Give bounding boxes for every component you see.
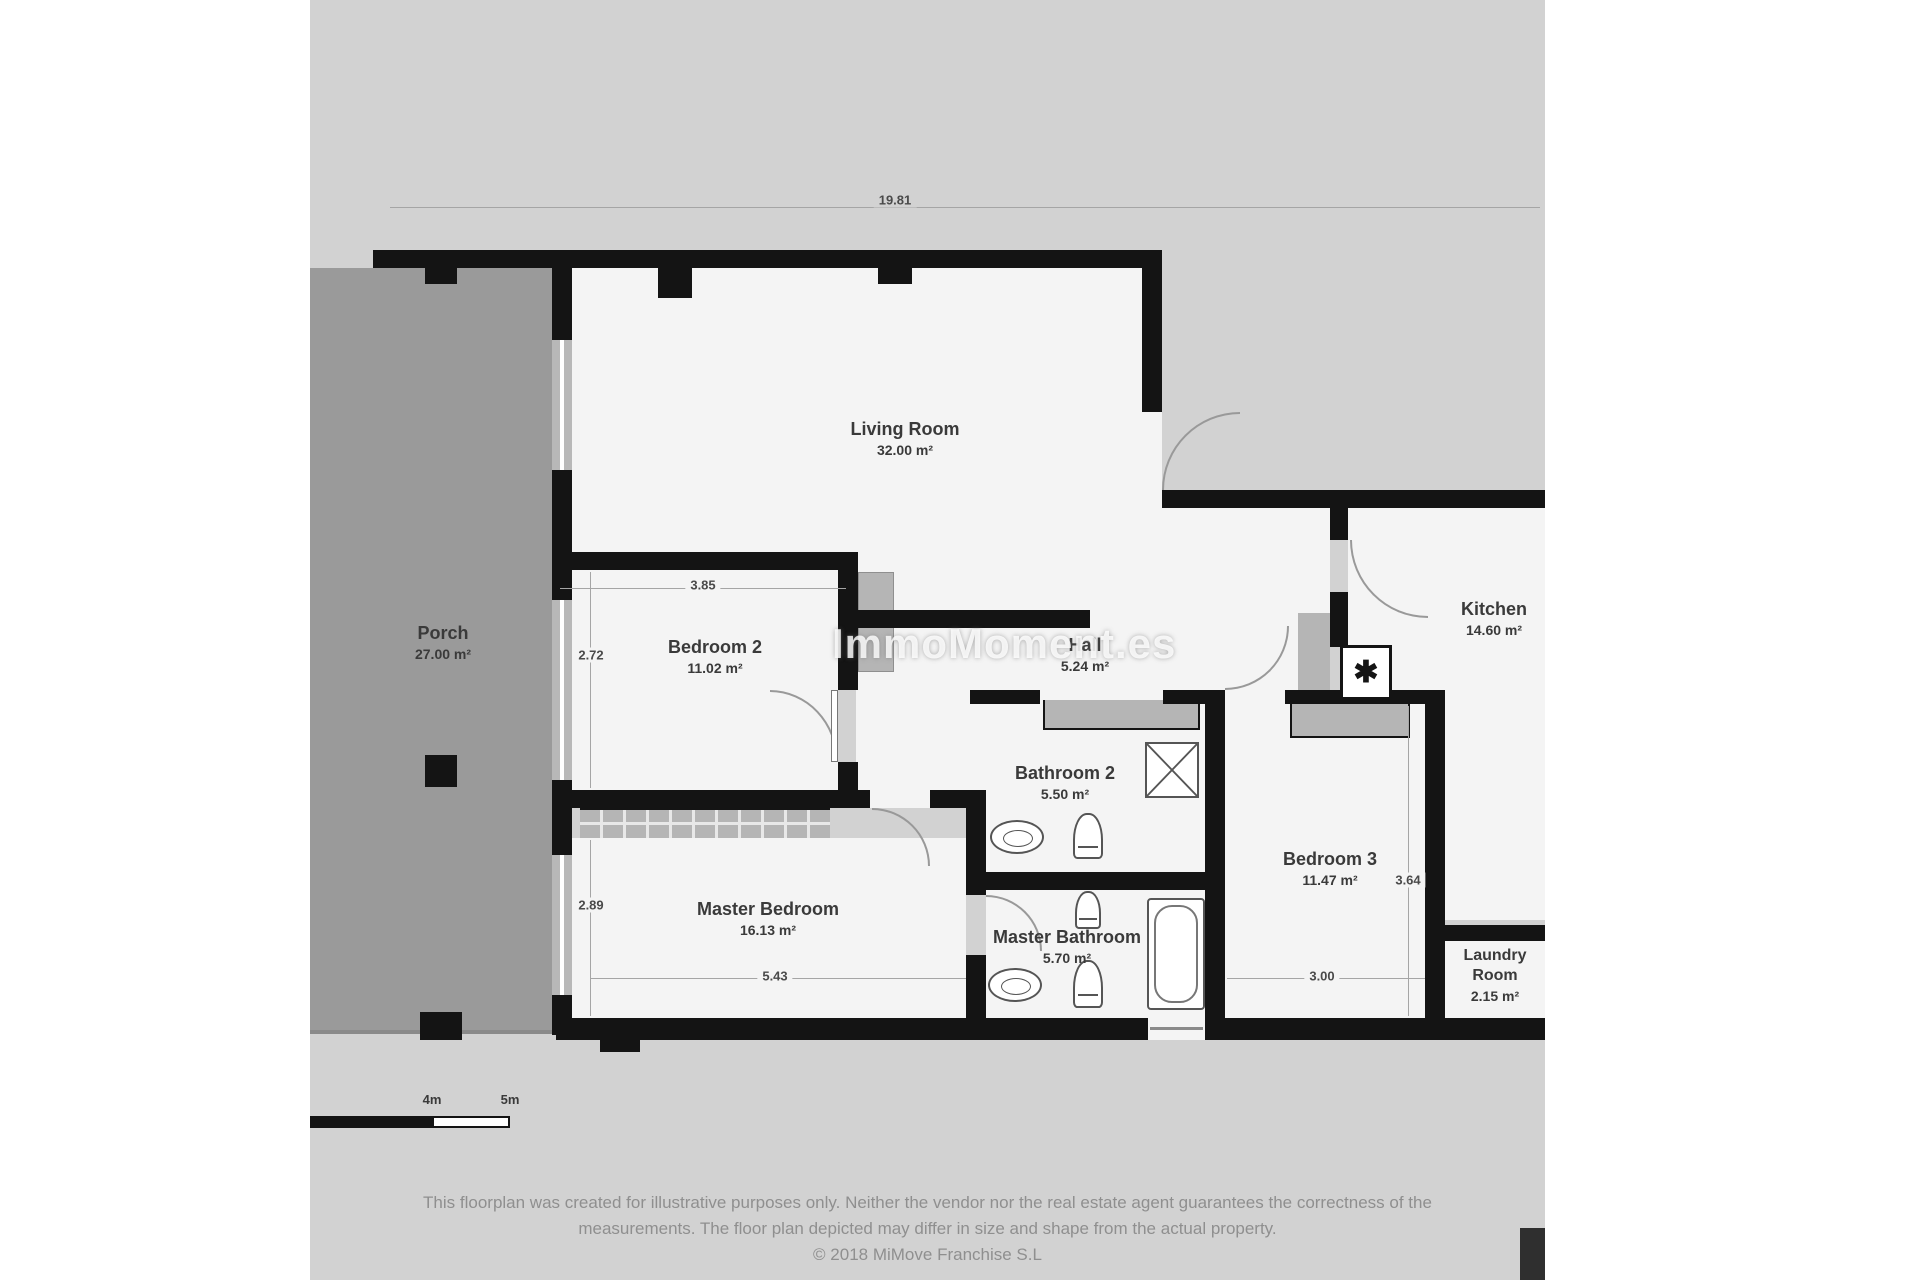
bathroom2-sink xyxy=(990,820,1044,854)
room-name-bedroom3: Bedroom 3 xyxy=(1283,848,1377,870)
wall-bath-divider xyxy=(986,872,1205,890)
scale-bar-solid xyxy=(310,1116,432,1128)
shower-tray xyxy=(1145,742,1199,798)
door-arc-master-bedroom xyxy=(872,808,930,866)
room-name-laundry: Laundry Room xyxy=(1449,946,1541,986)
wall-kitchen-left-lower xyxy=(1330,592,1348,647)
room-name-bedroom2: Bedroom 2 xyxy=(668,636,762,658)
dim-label-bedroom2-width: 3.85 xyxy=(685,578,720,593)
dim-label-bedroom3-depth: 3.64 xyxy=(1390,873,1425,888)
room-area-bedroom2: 11.02 m² xyxy=(668,658,762,678)
master-bathroom-sink xyxy=(988,968,1042,1002)
scale-label-4m: 4m xyxy=(423,1092,442,1107)
wall-laundry-top xyxy=(1445,925,1545,941)
porch-column xyxy=(425,755,457,787)
room-area-bathroom2: 5.50 m² xyxy=(1015,784,1115,804)
wall-master-top-a xyxy=(556,790,870,808)
wall-bathroom2-top-a xyxy=(986,690,1040,704)
wall-top xyxy=(373,250,1162,268)
wall-bedroom3-right xyxy=(1425,690,1445,1035)
room-area-master-bathroom: 5.70 m² xyxy=(993,948,1141,968)
door-arc-living-corridor xyxy=(1162,412,1240,490)
room-area-master-bedroom: 16.13 m² xyxy=(697,920,839,940)
bathroom2-toilet xyxy=(1073,813,1103,859)
wall-living-right xyxy=(1142,250,1162,412)
room-label-kitchen: Kitchen 14.60 m² xyxy=(1461,598,1527,640)
disclaimer-line2: measurements. The floor plan depicted ma… xyxy=(310,1216,1545,1242)
scale-label-5m: 5m xyxy=(501,1092,520,1107)
room-label-bedroom3: Bedroom 3 11.47 m² xyxy=(1283,848,1377,890)
wall-bedroom2-top xyxy=(556,552,858,570)
wall-bathroom2-top-b xyxy=(1163,690,1205,704)
watermark: ImmoMoment.es xyxy=(832,620,1176,668)
wall-column-2 xyxy=(658,268,692,298)
room-label-bedroom2: Bedroom 2 11.02 m² xyxy=(668,636,762,678)
dim-label-master-depth: 2.89 xyxy=(573,898,608,913)
room-label-living: Living Room 32.00 m² xyxy=(851,418,960,460)
wall-kitchen-top xyxy=(1162,490,1545,508)
dim-label-top: 19.81 xyxy=(874,193,917,208)
wall-bottom-left xyxy=(556,1018,1148,1040)
disclaimer-line1: This floorplan was created for illustrat… xyxy=(310,1190,1545,1216)
room-name-kitchen: Kitchen xyxy=(1461,598,1527,620)
room-name-master-bedroom: Master Bedroom xyxy=(697,898,839,920)
bedroom3-closet xyxy=(1290,704,1410,738)
floorplan-page: ✱ 19.81 3.85 2.72 2.89 5.43 3.64 xyxy=(0,0,1920,1280)
room-area-living: 32.00 m² xyxy=(851,440,960,460)
scale-bar-open xyxy=(432,1116,510,1128)
window-bedroom2 xyxy=(552,600,572,780)
boiler-unit: ✱ xyxy=(1340,645,1392,700)
wall-kitchen-left-upper xyxy=(1330,508,1348,540)
dim-line-master-depth xyxy=(590,840,591,1016)
room-area-bedroom3: 11.47 m² xyxy=(1283,870,1377,890)
copyright: © 2018 MiMove Franchise S.L xyxy=(310,1242,1545,1268)
footer: This floorplan was created for illustrat… xyxy=(310,1190,1545,1268)
living-corridor-opening xyxy=(1142,412,1162,490)
room-area-porch: 27.00 m² xyxy=(415,644,471,664)
room-label-master-bathroom: Master Bathroom 5.70 m² xyxy=(993,926,1141,968)
boiler-symbol: ✱ xyxy=(1353,655,1378,690)
wall-column-1 xyxy=(425,268,457,284)
dim-line-top xyxy=(390,207,1540,208)
room-name-bathroom2: Bathroom 2 xyxy=(1015,762,1115,784)
room-name-porch: Porch xyxy=(415,622,471,644)
cropped-logo-block xyxy=(1520,1228,1545,1280)
room-label-porch: Porch 27.00 m² xyxy=(415,622,471,664)
wall-porch-a xyxy=(552,250,572,340)
dim-line-bedroom2-depth xyxy=(590,572,591,788)
window-master-bedroom xyxy=(552,855,572,995)
room-name-master-bathroom: Master Bathroom xyxy=(993,926,1141,948)
room-area-laundry: 2.15 m² xyxy=(1449,986,1541,1006)
dim-label-master-width: 5.43 xyxy=(757,969,792,984)
wall-porch-b xyxy=(552,470,572,600)
kitchen-cabinet xyxy=(1298,613,1330,690)
master-bathroom-bidet xyxy=(1075,891,1101,929)
wardrobe-closet xyxy=(580,808,830,838)
hall-closet xyxy=(1043,700,1200,730)
terrace-door-threshold xyxy=(1150,1027,1203,1030)
room-label-bathroom2: Bathroom 2 5.50 m² xyxy=(1015,762,1115,804)
wall-porch-pillar xyxy=(420,1012,462,1040)
dim-line-bedroom3-depth xyxy=(1408,706,1409,1016)
dim-label-bedroom2-depth: 2.72 xyxy=(573,648,608,663)
wall-bottom-right xyxy=(1205,1018,1545,1040)
room-label-laundry: Laundry Room 2.15 m² xyxy=(1449,946,1541,1006)
wall-bottom-tab xyxy=(600,1040,640,1052)
wall-master-top-b xyxy=(930,790,986,808)
window-living xyxy=(552,340,572,470)
bedroom3-door-opening xyxy=(1225,690,1285,704)
wall-column-3 xyxy=(878,268,912,284)
bathtub xyxy=(1147,898,1205,1010)
room-area-kitchen: 14.60 m² xyxy=(1461,620,1527,640)
wall-master-right-a xyxy=(966,808,986,895)
door-leaf-bedroom2 xyxy=(831,690,838,762)
room-label-master-bedroom: Master Bedroom 16.13 m² xyxy=(697,898,839,940)
floorplan-image: ✱ 19.81 3.85 2.72 2.89 5.43 3.64 xyxy=(310,0,1545,1280)
dim-label-bedroom3-width: 3.00 xyxy=(1304,969,1339,984)
wall-bathroom2-right xyxy=(1205,690,1225,1018)
room-name-living: Living Room xyxy=(851,418,960,440)
